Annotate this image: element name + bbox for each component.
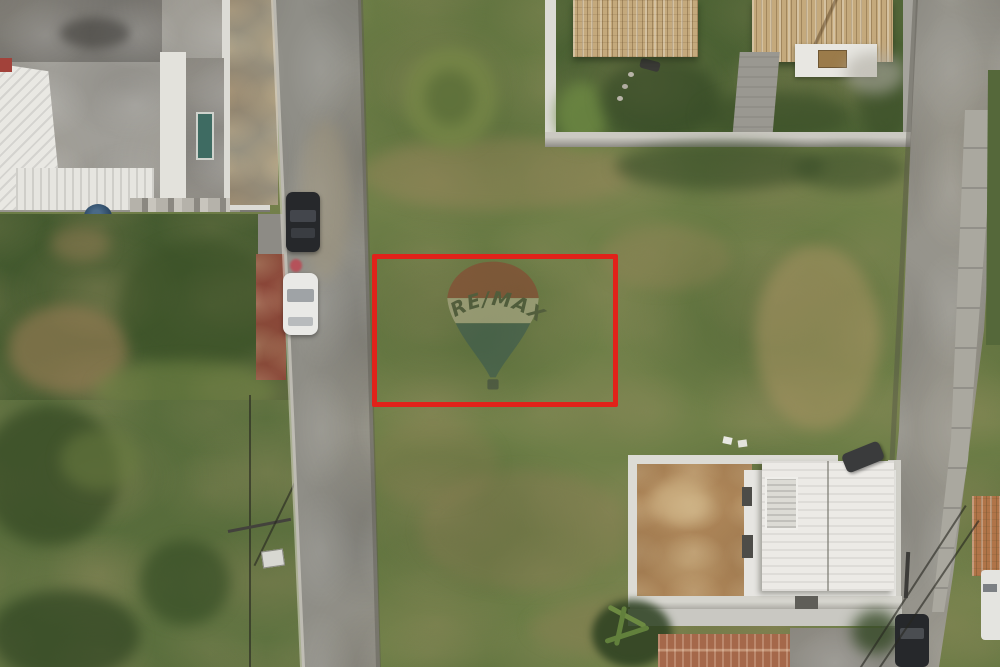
corrugated-section <box>765 477 798 530</box>
debris-speck <box>738 439 748 447</box>
white-building-wall <box>160 52 186 210</box>
bush-cluster <box>140 540 230 625</box>
terracotta-roof-house-a <box>573 0 698 57</box>
power-line <box>249 395 251 667</box>
dirt-patch <box>755 245 880 430</box>
dirt-patch <box>600 225 730 290</box>
garden-bare-soil <box>50 226 110 262</box>
gray-wall <box>258 214 284 258</box>
boundary-wall <box>545 0 556 140</box>
dirt-patch <box>368 420 498 505</box>
car-windshield <box>290 210 316 222</box>
bush-cluster <box>425 70 475 125</box>
car-rear-window <box>291 228 315 238</box>
teal-window <box>196 112 214 160</box>
terracotta-roof-bottom <box>658 634 793 667</box>
white-van <box>981 570 1000 640</box>
terracotta-roof-right <box>972 496 1000 576</box>
property-boundary-highlight <box>372 254 618 407</box>
van-window <box>983 584 997 592</box>
concrete-driveway <box>732 52 780 138</box>
grass-light-patch <box>60 430 140 490</box>
wood-panel <box>818 50 847 68</box>
yard-clutter <box>130 198 230 212</box>
dirt-light-patch <box>650 480 710 525</box>
roof-ridge <box>827 461 829 591</box>
lot-wall-left <box>628 455 637 607</box>
yard-clutter <box>845 52 905 94</box>
red-object <box>0 58 12 72</box>
dirt-patch <box>362 138 632 210</box>
stepping-stone <box>628 72 634 77</box>
black-car <box>286 192 320 252</box>
car-rear-window <box>288 317 313 326</box>
window-opening <box>742 535 753 558</box>
aerial-photo: RE/MAX <box>0 0 1000 667</box>
window-opening <box>742 487 752 506</box>
pole-transformer-box <box>261 549 285 569</box>
stepping-stone <box>622 84 628 89</box>
pink-object <box>290 259 302 272</box>
shrub-row <box>615 142 825 190</box>
road-shoulder <box>230 0 278 205</box>
stepping-stone <box>617 96 623 101</box>
white-car <box>283 273 318 335</box>
concrete-stain <box>60 18 130 48</box>
brick-wall <box>256 254 286 380</box>
car-windshield <box>287 289 314 302</box>
shrub-row <box>795 148 905 190</box>
parked-dark-car <box>895 614 929 667</box>
